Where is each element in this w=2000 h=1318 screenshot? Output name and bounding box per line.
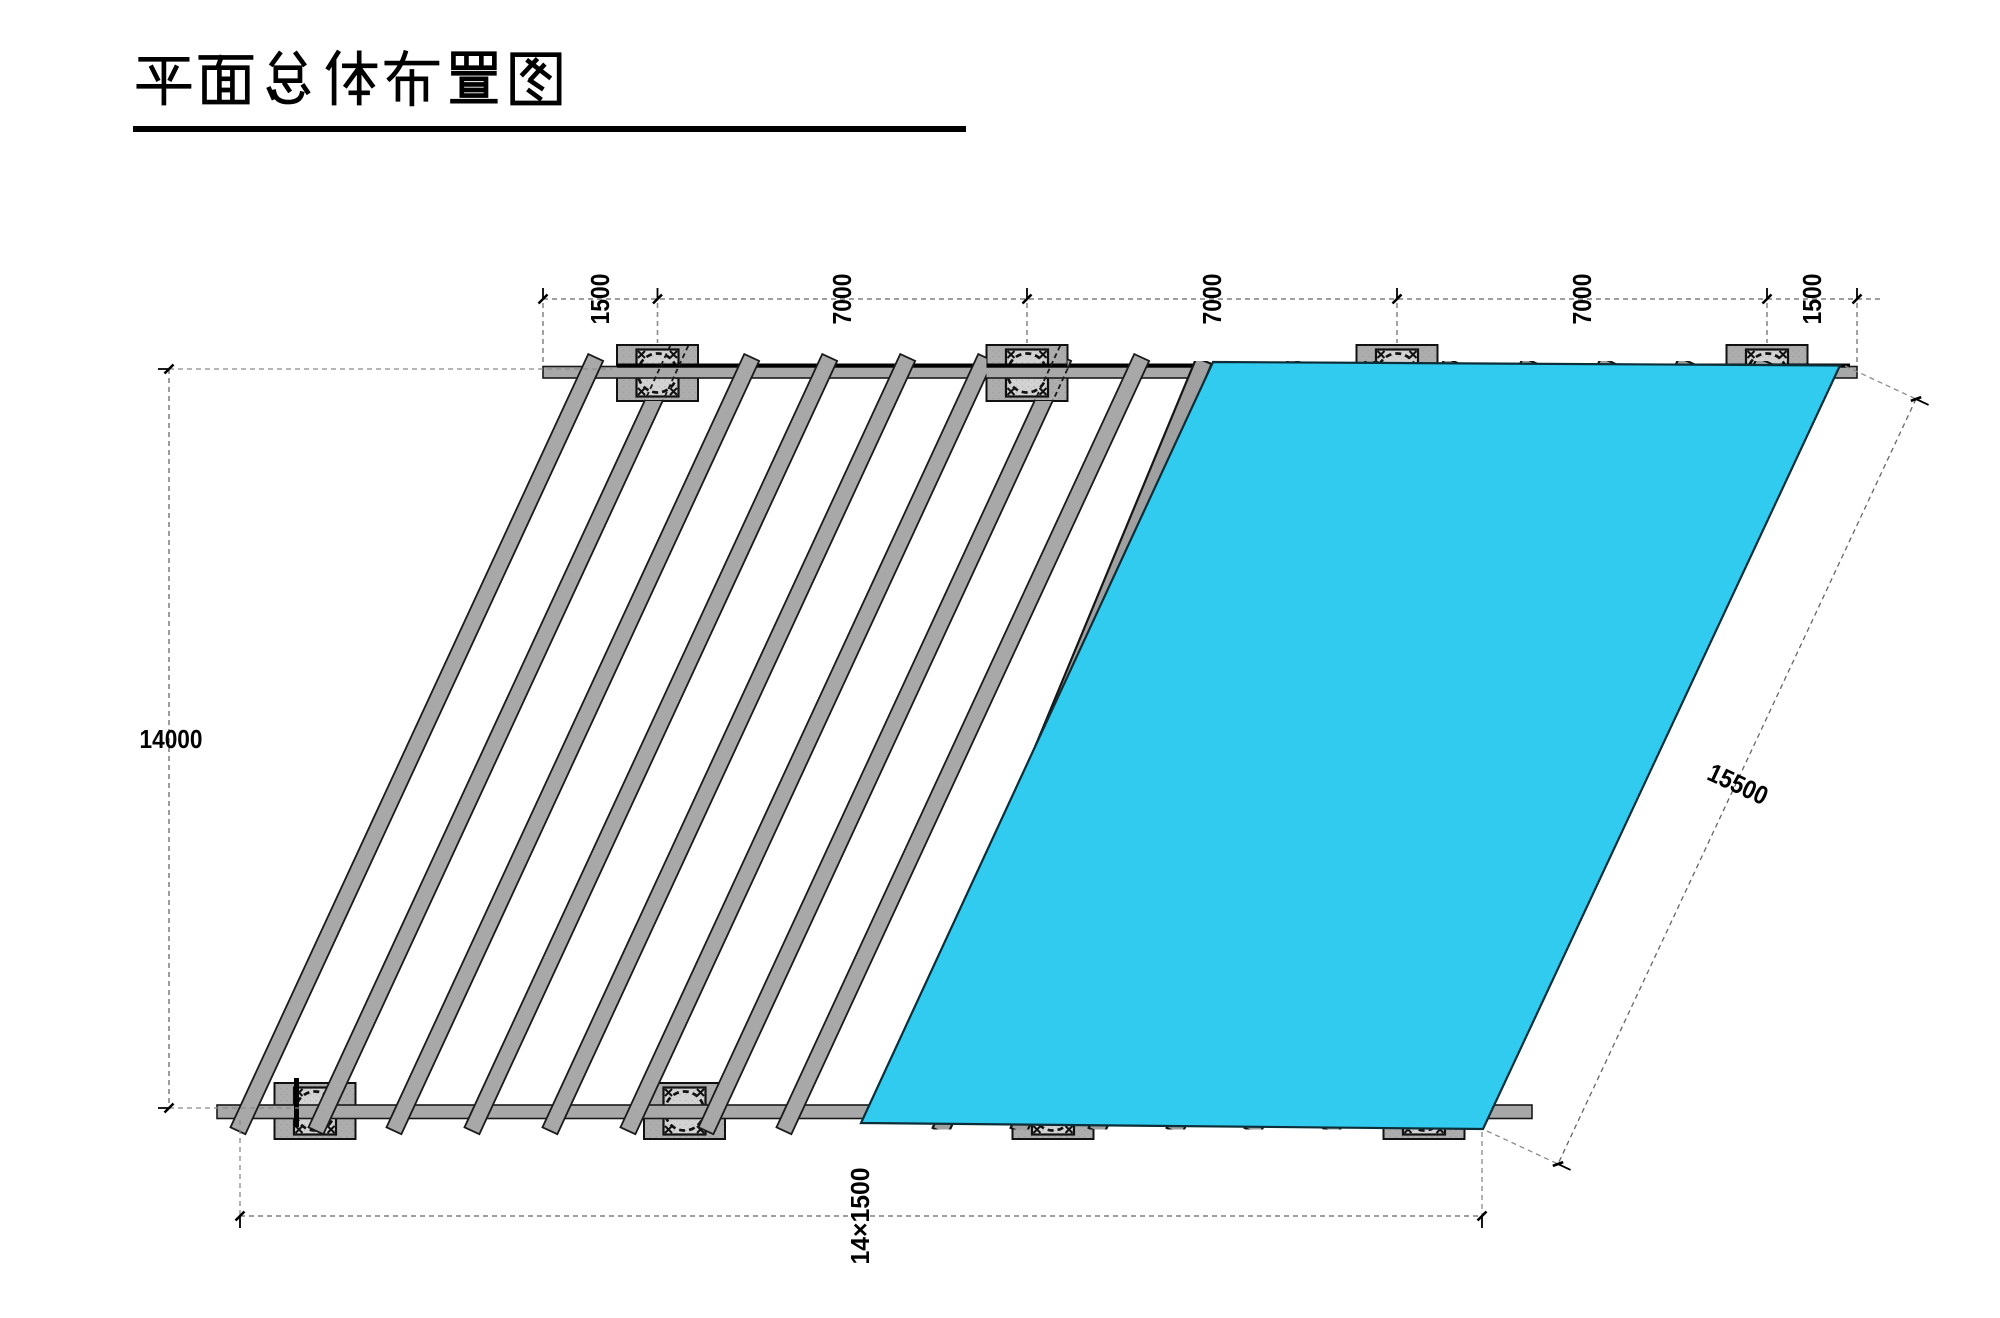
svg-text:7000: 7000 (1567, 274, 1597, 325)
svg-text:15500: 15500 (1703, 757, 1773, 811)
svg-text:1500: 1500 (1797, 274, 1827, 325)
svg-text:14000: 14000 (140, 724, 203, 754)
svg-text:7000: 7000 (1197, 274, 1227, 325)
svg-text:14×1500: 14×1500 (845, 1168, 875, 1265)
svg-text:1500: 1500 (585, 274, 615, 325)
svg-text:7000: 7000 (827, 274, 857, 325)
